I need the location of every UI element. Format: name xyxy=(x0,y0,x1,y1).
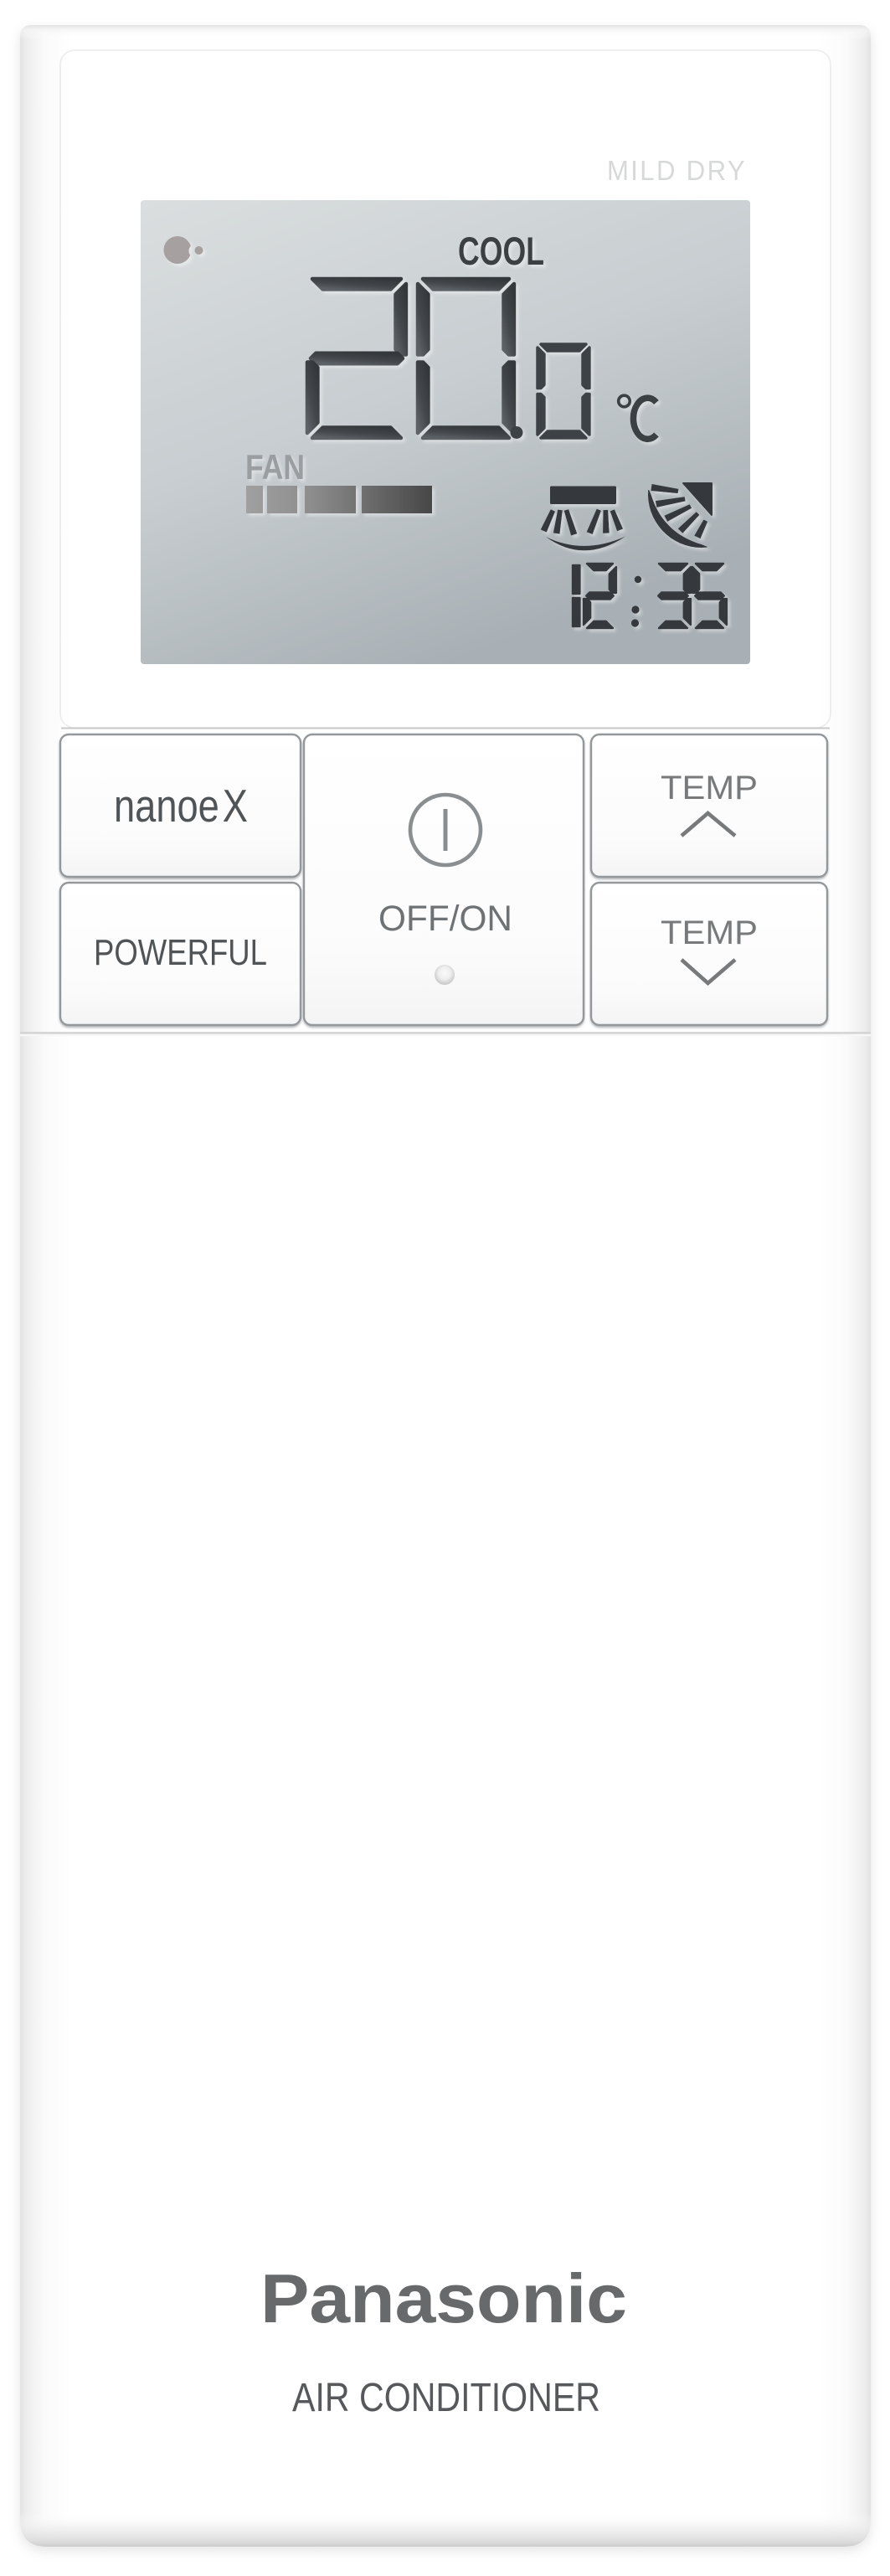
svg-text:FAN: FAN xyxy=(245,447,305,487)
svg-text:OFF/ON: OFF/ON xyxy=(378,899,512,939)
svg-text:MILD DRY: MILD DRY xyxy=(607,155,747,186)
svg-text:AIR CONDITIONER: AIR CONDITIONER xyxy=(292,2376,600,2420)
svg-text:POWERFUL: POWERFUL xyxy=(94,932,267,973)
svg-text:COOL: COOL xyxy=(458,229,544,273)
svg-text:nanoeX: nanoeX xyxy=(114,780,248,831)
svg-text:Panasonic: Panasonic xyxy=(260,2259,627,2337)
svg-text:TEMP: TEMP xyxy=(661,914,758,951)
svg-text:TEMP: TEMP xyxy=(661,770,758,806)
